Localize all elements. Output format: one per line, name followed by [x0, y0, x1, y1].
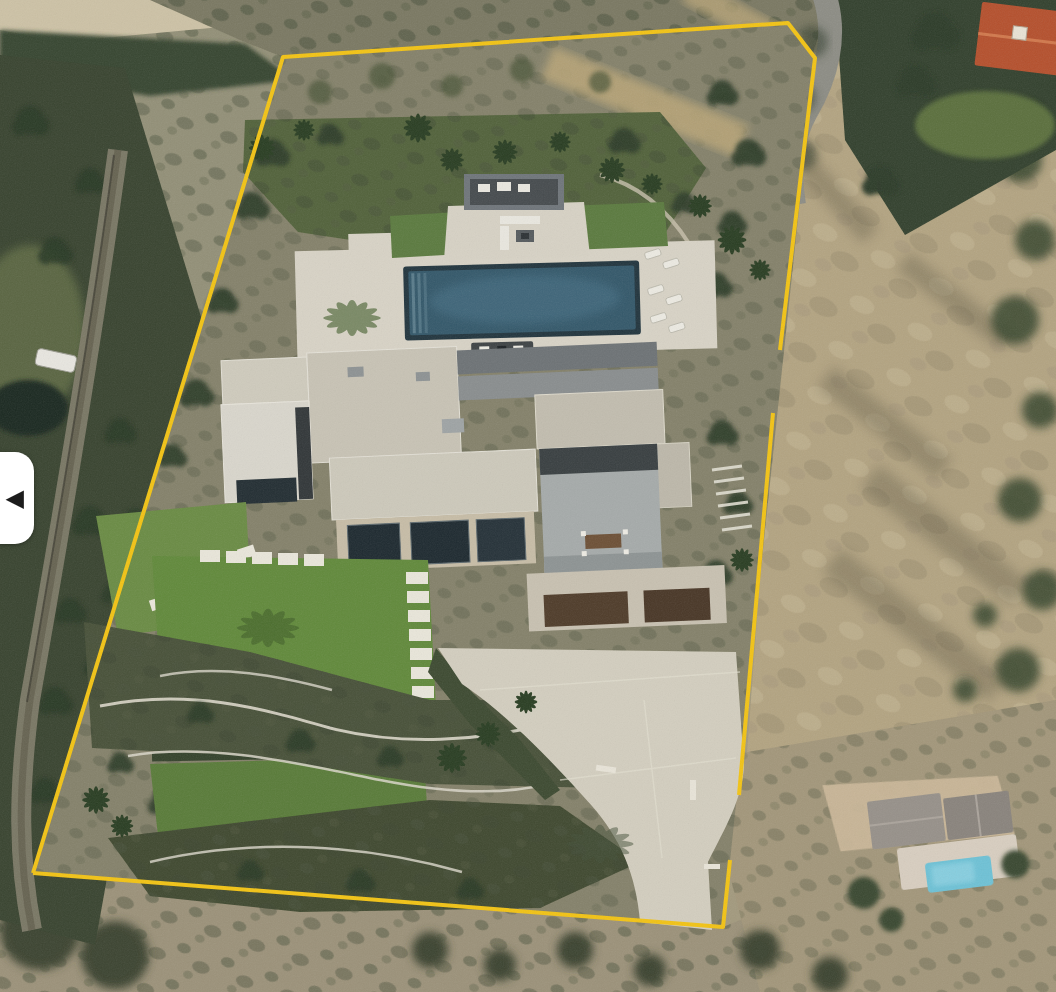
- chevron-left-icon: ◀: [6, 486, 24, 510]
- previous-photo-button[interactable]: ◀: [0, 452, 34, 544]
- photo-grain: [0, 0, 1056, 992]
- aerial-photo: [0, 0, 1056, 992]
- photo-viewer: ◀: [0, 0, 1056, 992]
